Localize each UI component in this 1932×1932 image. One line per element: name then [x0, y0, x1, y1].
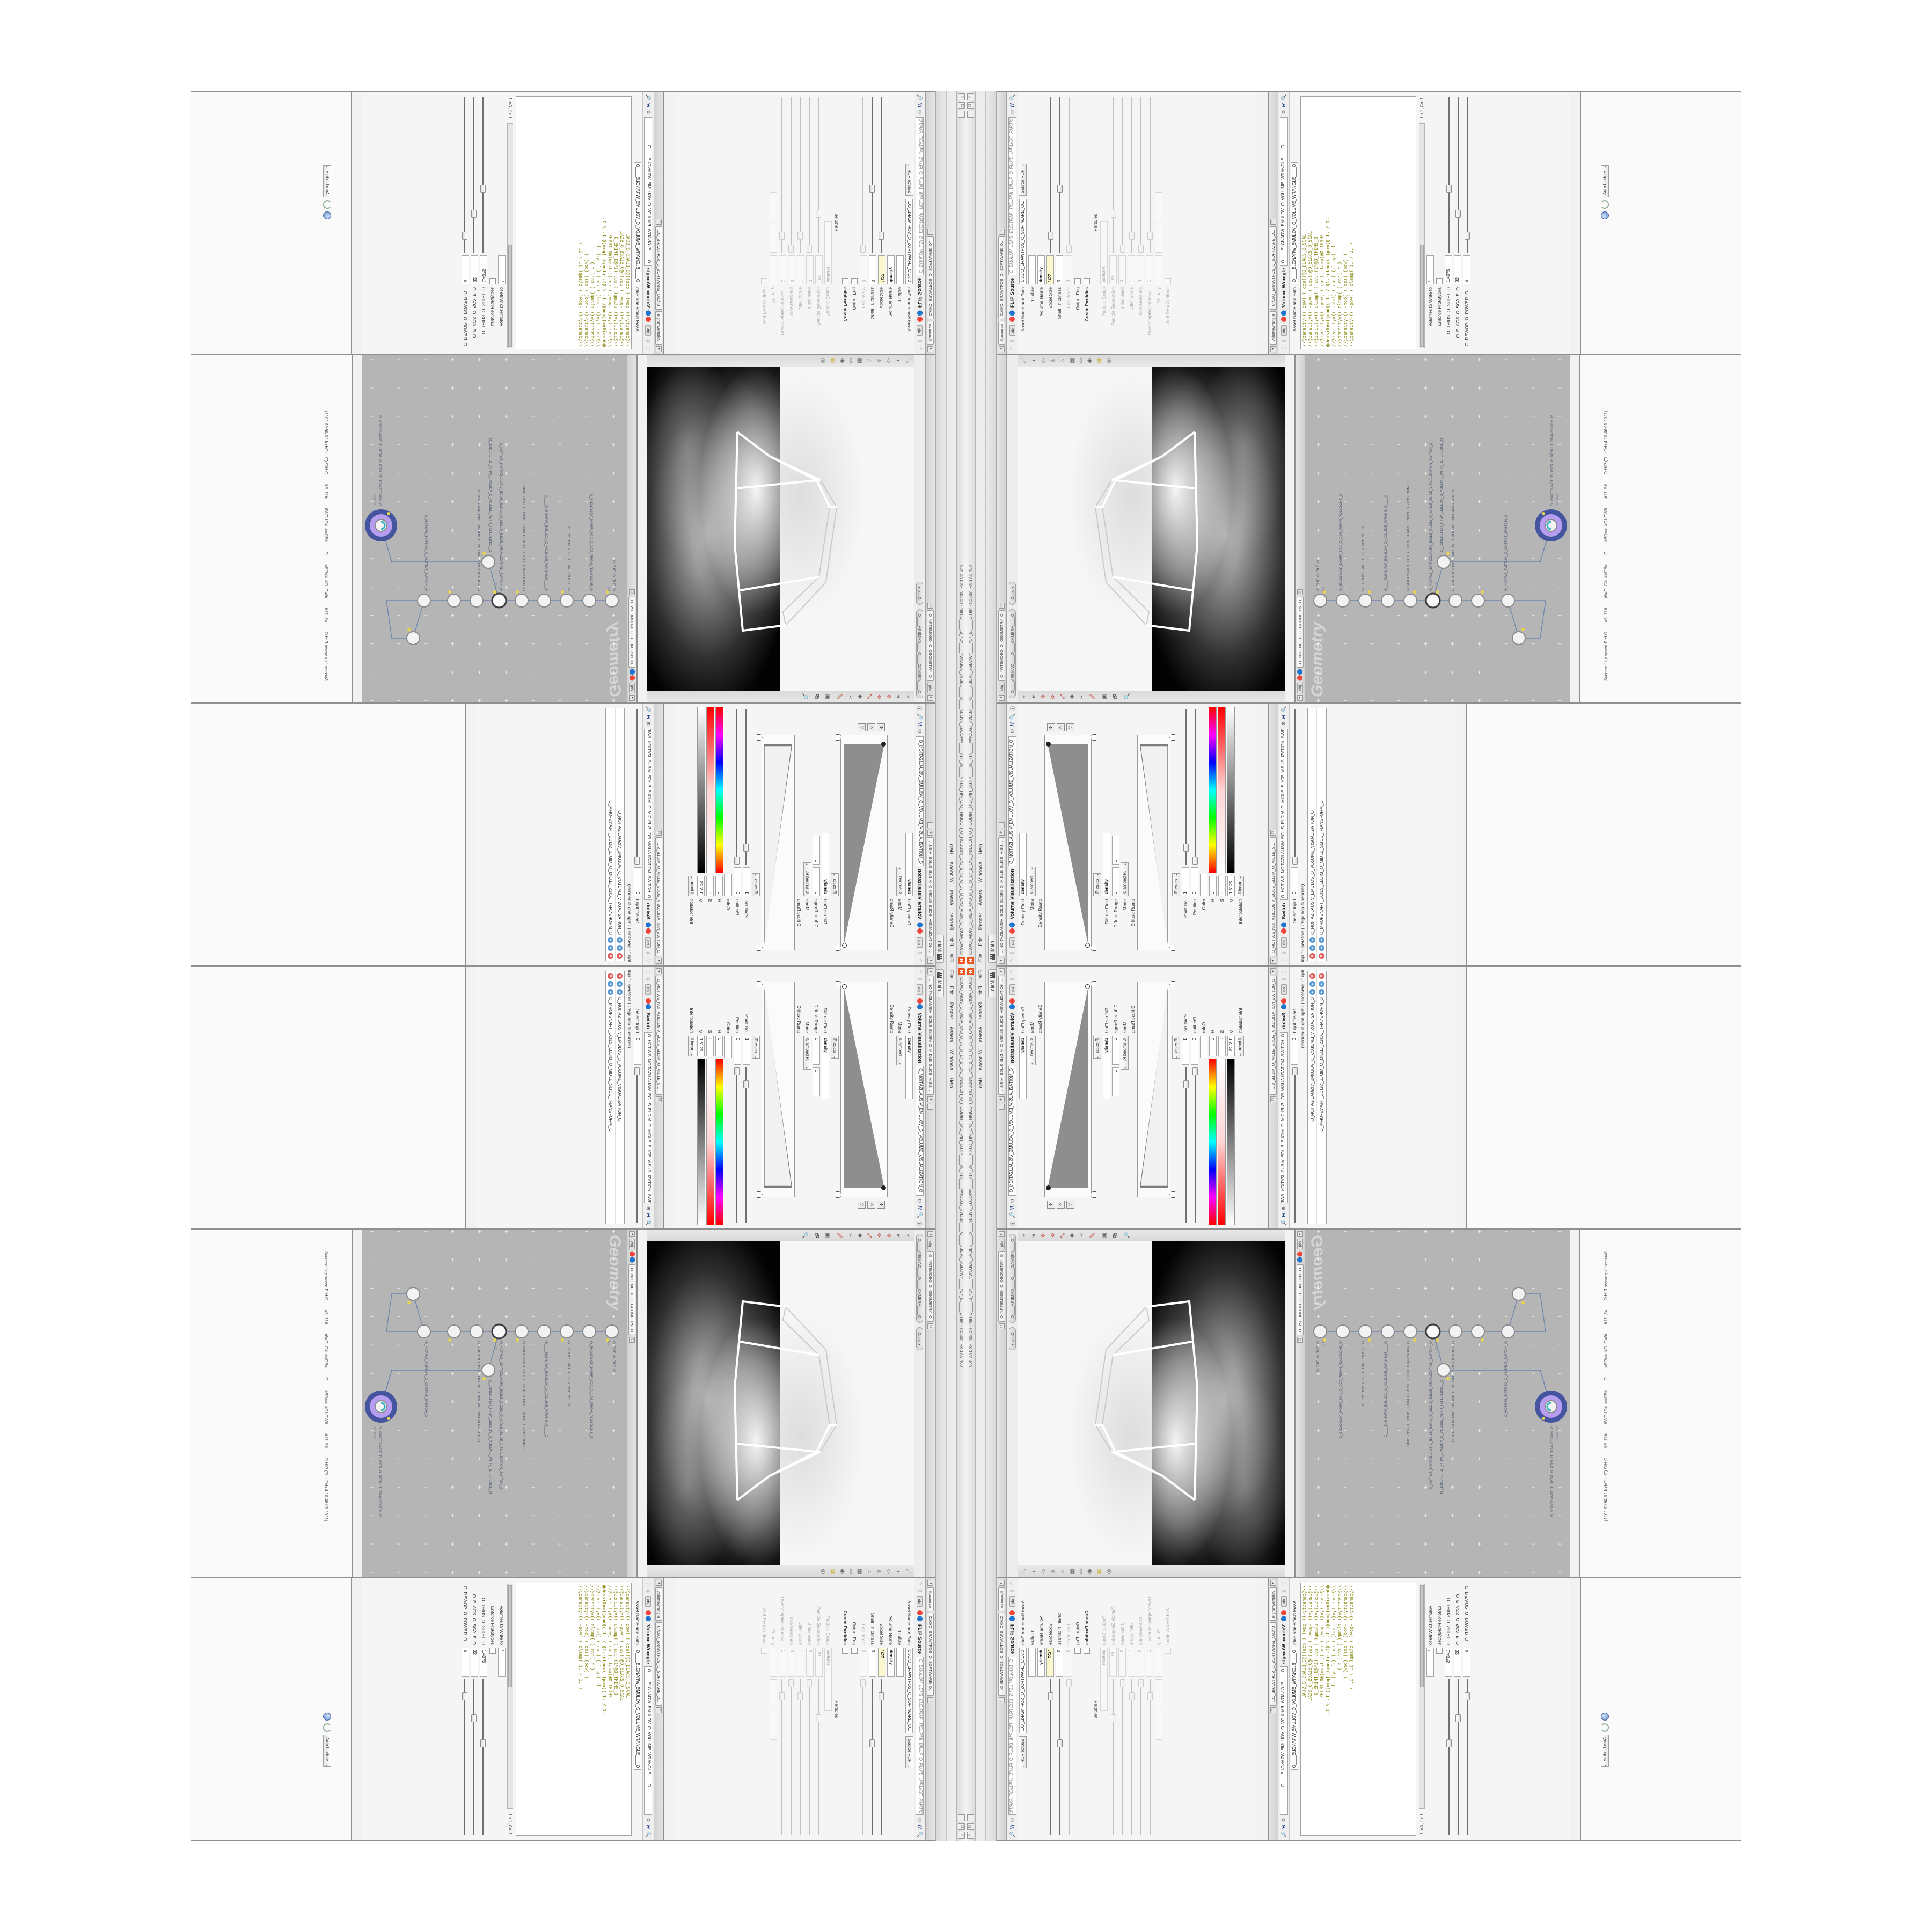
rotate-icon[interactable]: ⟳ [1050, 1233, 1056, 1238]
flipbook-icon[interactable]: 🗗 [811, 694, 821, 699]
pane-max-icon[interactable]: ▢ [656, 830, 662, 836]
node-name-field[interactable]: O_HCTIWS_NOITAZILAUSIV_ECILS_ELDIM_O_MID… [1280, 729, 1288, 901]
flipbook-icon[interactable]: 🗗 [811, 1233, 821, 1238]
output-fog-checkbox[interactable] [1074, 1648, 1081, 1654]
reorder-input-icon[interactable]: ◂ [608, 981, 614, 987]
ramp-handle-end[interactable] [1046, 742, 1051, 747]
hue-strip[interactable] [1209, 1059, 1217, 1225]
ortho-toggle[interactable]: Ortho ▾ [917, 1327, 924, 1350]
pane-tab-path[interactable]: C:/O/O_ERAWTFOS_O_SOFTWARE_O... [655, 1622, 662, 1705]
obj-chip[interactable]: obj [1281, 325, 1287, 336]
color-swatch[interactable] [1200, 874, 1207, 896]
ramp-flip-icon[interactable]: ▽ [1066, 1201, 1074, 1209]
h-input[interactable]: 0 [1209, 1036, 1217, 1056]
spare-scale-input[interactable]: 32 [1454, 255, 1461, 284]
select-input-slider[interactable] [1291, 1067, 1298, 1225]
diffuse-ramp-widget[interactable] [1137, 982, 1170, 1197]
select-input-field[interactable]: 0 [634, 1036, 642, 1065]
pane-max-icon[interactable]: ▢ [927, 603, 933, 609]
pane-scroll-left-icon[interactable]: ◂ [927, 1580, 933, 1586]
obj-chip[interactable]: obj [629, 1239, 635, 1249]
gear-icon[interactable]: ⚙ [1281, 1818, 1287, 1822]
obj-chip[interactable]: obj [646, 984, 652, 995]
particle-separation-input[interactable]: 1/9 [816, 255, 823, 284]
ramp-add-icon[interactable]: ✛ [1047, 1201, 1055, 1209]
comet-icon[interactable]: ☄ [905, 1569, 911, 1574]
select-arrow-icon[interactable]: ➤ [895, 694, 901, 699]
ramp-marker-right[interactable] [836, 1191, 841, 1198]
close-button[interactable]: ✕ [967, 93, 974, 100]
nav-up-icon[interactable]: ⇧ [1280, 1581, 1287, 1586]
density-presets-dropdown[interactable]: Presets [831, 1036, 839, 1059]
pane-scroll-left-icon[interactable]: ◂ [1297, 695, 1303, 701]
vex-code-editor[interactable]: //@density=(( pow( ( cos((@O_ELACS_O_SCA… [1300, 96, 1416, 349]
pane-scroll-left-icon[interactable]: ◂ [1270, 958, 1276, 964]
particle-group-input[interactable]: particles [1100, 221, 1108, 284]
select-arrow-icon[interactable]: ➤ [1031, 1233, 1037, 1238]
input-operator-row[interactable]: ✕ ◂ ◂ O_NOITAZILAUSIV_EMULOV_O_VOLUME_VI… [615, 708, 624, 961]
jitter-seed-input[interactable]: 0 [1118, 255, 1126, 284]
density-ramp-widget[interactable]: ✛ ✕ ▽ [840, 982, 888, 1197]
ortho-toggle[interactable]: Ortho ▾ [1009, 1327, 1016, 1350]
spare-scale-slider[interactable] [472, 1679, 478, 1837]
diffuse-mode-dropdown[interactable]: Clamped R... [803, 862, 811, 896]
camera-selector[interactable]: O____AREMAC____O____CAMERA____O [1009, 1234, 1016, 1323]
delete-input-icon[interactable]: ✕ [608, 953, 614, 959]
reorder-input-icon[interactable]: ◂ [608, 989, 614, 995]
spare-shift-slider[interactable] [481, 95, 487, 253]
point-no-input[interactable]: 1 [1182, 867, 1189, 896]
network-canvas[interactable]: + + + + + + + + + + + + + + + + + + + + … [1305, 1230, 1570, 1577]
s-input[interactable]: 0 [1218, 1036, 1226, 1056]
search-icon[interactable]: 🔍 [646, 1220, 652, 1226]
pane-max-icon[interactable]: ▢ [1270, 219, 1276, 225]
cook-mode-control[interactable]: Auto Update [1600, 165, 1609, 219]
scissors-icon[interactable]: ✂ [847, 694, 853, 699]
reorder-input-icon[interactable]: ◂ [1309, 945, 1315, 951]
input-operator-row[interactable]: ✕ ◂ ◂ O_NOITAZILAUSIV_EMULOV_O_VOLUME_VI… [615, 971, 624, 1224]
voxel-size-input[interactable]: 1/27 [879, 255, 886, 284]
node-name-field[interactable]: O_NOITAZILAUSIV_EMULOV_O_VOLUME_VISUALIZ… [1008, 1066, 1016, 1196]
viewport-canvas[interactable] [1018, 1241, 1285, 1565]
ramp-marker-left[interactable] [836, 981, 841, 987]
spare-power-input[interactable]: 6 [1463, 255, 1470, 284]
volumes-to-write-input[interactable]: * [499, 255, 506, 284]
abc-icon[interactable]: abc [1079, 357, 1083, 363]
pane-tab[interactable]: O_HCTIWS_NOITAZILAUSIV_ECILS_ELDIM_O_MID… [1270, 837, 1277, 956]
oversampling-input[interactable]: 0 [1137, 255, 1144, 284]
gear-icon[interactable]: ⚙ [1009, 109, 1015, 114]
spare-scale-input[interactable]: 32 [471, 1648, 479, 1677]
pane-tab-flipsource[interactable]: flipsource [927, 321, 934, 345]
density-field-input[interactable]: density [1019, 1036, 1027, 1099]
pane-tab[interactable]: ....NOITAZILAUSIV_ECILS_ELDIM_O_MIDLE_SL… [927, 837, 934, 956]
voxel-size-slider[interactable] [1047, 1679, 1053, 1837]
node-name-field[interactable]: O_HCTIWS_NOITAZILAUSIV_ECILS_ELDIM_O_MID… [645, 729, 653, 901]
particle-separation-slider[interactable] [816, 1679, 823, 1837]
search-icon[interactable]: 🔍 [917, 714, 923, 720]
h-input[interactable]: 0 [716, 1036, 723, 1056]
spare-power-input[interactable]: 6 [1463, 1648, 1470, 1677]
network-canvas[interactable]: + + + + + + + + + + + + + + + + + + + + … [362, 1230, 627, 1577]
delete-input-icon[interactable]: ✕ [1309, 973, 1315, 979]
gear-icon[interactable]: ⚙ [917, 729, 923, 733]
recook-icon[interactable] [1600, 1723, 1609, 1732]
pane-scroll-left-icon[interactable]: ◂ [999, 958, 1005, 964]
fog-boost-slider[interactable] [1065, 1679, 1072, 1837]
saturation-strip[interactable] [1218, 1059, 1226, 1225]
menu-assets[interactable]: Assets [978, 1027, 984, 1042]
code-hscrollbar[interactable] [1419, 1584, 1425, 1809]
point-no-input[interactable]: 1 [1182, 1036, 1189, 1065]
hue-strip[interactable] [715, 1059, 723, 1225]
ramp-flip-icon[interactable]: ▽ [1066, 723, 1074, 731]
menu-file[interactable]: File [978, 970, 984, 978]
comet-icon[interactable]: ☄ [905, 358, 911, 363]
nav-up-icon[interactable]: ⇧ [1009, 958, 1016, 963]
spare-power-input[interactable]: 6 [462, 1648, 470, 1677]
spare-shift-input[interactable]: 1.4375 [1445, 1648, 1452, 1677]
density-field-input[interactable]: density [906, 1036, 913, 1099]
pane-scroll-left-icon[interactable]: ◂ [927, 968, 933, 974]
spare-scale-slider[interactable] [472, 95, 478, 253]
pane-tab[interactable]: ....NOITAZILAUSIV_ECILS_ELDIM_O_MIDLE_SL… [927, 976, 934, 1095]
desktop-tab-main[interactable]: Main [936, 969, 944, 997]
volumes-to-write-input[interactable]: * [499, 1648, 506, 1677]
position-input[interactable]: 0 [1191, 867, 1198, 896]
asset-name-field[interactable]: O_EMULOV_LEHS_ELCITRAP_TICILPMI_DIULF_O_… [1008, 117, 1016, 275]
enforce-prototypes-checkbox[interactable] [490, 278, 496, 284]
node-name-field[interactable]: O_NOITAZILAUSIV_EMULOV_O_VOLUME_VISUALIZ… [916, 736, 924, 866]
pane-tab[interactable]: O_HCTIWS_NOITAZILAUSIV_ECILS_ELDIM_O_MID… [655, 976, 662, 1095]
camera-selector[interactable]: O____AREMAC____O____CAMERA____O [917, 1234, 924, 1323]
oversampling-bw-input[interactable]: 1 [1146, 255, 1153, 284]
gear-icon[interactable]: ⚙ [917, 109, 923, 114]
v-input[interactable]: 1.8125 [698, 876, 705, 896]
spare-shift-slider[interactable] [1445, 1679, 1452, 1837]
nav-up-icon[interactable]: ⇧ [1009, 346, 1016, 351]
pose-icon[interactable]: 🖉 [834, 1233, 843, 1239]
nav-down-icon[interactable]: ⇩ [645, 339, 652, 343]
menu-windows[interactable]: Windows [949, 862, 955, 883]
input-operator-row[interactable]: ✕ ◂ ◂ O_NOITAZILAUSIV_EMULOV_O_VOLUME_VI… [1308, 971, 1317, 1224]
ramp-marker-right[interactable] [1091, 1191, 1096, 1198]
diffuse-ramp-widget[interactable] [762, 982, 795, 1197]
gear-icon[interactable]: ⚙ [917, 1198, 923, 1203]
desktop-tab-main[interactable]: Main [988, 969, 996, 997]
input-operator-row[interactable]: ✕ ◂ ◂ O_MROFSNART_ECILS_ELDIM_O_MIDLE_SL… [1317, 708, 1326, 961]
oversampling-bw-slider[interactable] [1146, 1679, 1153, 1837]
gear-icon[interactable]: ⚙ [646, 1206, 652, 1210]
asset-mode-dropdown[interactable]: Source FLIP [1019, 1736, 1027, 1768]
add-rest-checkbox[interactable] [1165, 278, 1171, 284]
ramp-marker-right[interactable] [836, 734, 841, 741]
select-input-field[interactable]: 0 [1291, 867, 1298, 896]
pane-scroll-left-icon[interactable]: ◂ [1270, 1580, 1276, 1586]
gear-icon[interactable]: ⚙ [1281, 721, 1287, 726]
pane-max-icon[interactable]: ▢ [1297, 589, 1303, 595]
ramp-flip-icon[interactable]: ▽ [858, 1201, 866, 1209]
pane-scroll-left-icon[interactable]: ◂ [656, 968, 662, 974]
position-input[interactable]: 0 [1191, 1036, 1198, 1065]
output-fog-checkbox[interactable] [1074, 278, 1081, 284]
jitter-scale-slider[interactable] [798, 1679, 804, 1837]
scissors-icon[interactable]: ✂ [1079, 1233, 1085, 1238]
nav-down-icon[interactable]: ⇩ [1009, 950, 1016, 955]
info-icon[interactable]: ⓘ [1009, 1221, 1016, 1226]
menu-help[interactable]: Help [978, 844, 984, 855]
code-hscrollbar[interactable] [508, 123, 514, 348]
scale-icon[interactable]: ⤢ [1060, 694, 1066, 699]
obj-chip[interactable]: obj [1297, 683, 1303, 693]
scale-icon[interactable]: ⤢ [1060, 1233, 1066, 1238]
oversampling-input[interactable]: 0 [788, 1648, 796, 1677]
pane-max-icon[interactable]: ▢ [927, 229, 933, 235]
nav-down-icon[interactable]: ⇩ [1280, 950, 1287, 955]
code-hscrollbar[interactable] [508, 1584, 514, 1809]
search-icon[interactable]: 🔍 [1281, 1220, 1287, 1226]
info-icon[interactable]: ⓘ [917, 706, 924, 711]
pane-tab-volumewrangle[interactable]: volumewrangle [1270, 311, 1277, 345]
lens-icon[interactable]: ◉ [1087, 1569, 1093, 1574]
pane-max-icon[interactable]: ▢ [656, 1707, 662, 1713]
spare-scale-input[interactable]: 32 [471, 255, 479, 284]
ramp-handle-end[interactable] [881, 742, 886, 747]
ramp-del-icon[interactable]: ✕ [867, 723, 875, 731]
obj-chip[interactable]: obj [999, 1239, 1005, 1249]
reorder-input-icon[interactable]: ◂ [1319, 989, 1324, 995]
pane-max-icon[interactable]: ▢ [999, 1323, 1005, 1329]
spare-shift-input[interactable]: 1.4375 [1445, 255, 1452, 284]
gear-icon[interactable]: ⚙ [917, 1818, 923, 1822]
reorder-input-icon[interactable]: ◂ [1319, 937, 1324, 943]
point-no-input[interactable]: 1 [743, 867, 751, 896]
search-icon[interactable]: 🔍 [1009, 94, 1015, 100]
pane-tab-path[interactable]: C:/O/O_ERAWTFOS_O_SOFTWARE_O... [927, 237, 934, 319]
shade-sphere-icon[interactable]: ◑ [1031, 359, 1037, 362]
abc-icon[interactable]: abc [849, 357, 853, 363]
flipbook-icon[interactable]: 🗗 [1111, 694, 1121, 699]
gear-icon[interactable]: ⚙ [646, 109, 652, 114]
density-field-input[interactable]: density [1019, 833, 1027, 896]
gear-icon[interactable]: ⚙ [1009, 1818, 1015, 1822]
value-strip[interactable] [1227, 707, 1235, 873]
pane-max-icon[interactable]: ▢ [927, 1323, 933, 1329]
position-input[interactable]: 0 [734, 1036, 742, 1065]
pane-max-icon[interactable]: ▢ [999, 229, 1005, 235]
ramp-marker-right[interactable] [757, 734, 763, 741]
shade-sphere-icon[interactable]: ◑ [895, 1570, 901, 1573]
info-icon[interactable]: ⓘ [1009, 706, 1016, 711]
search-icon[interactable]: 🔍 [1281, 94, 1287, 100]
nav-down-icon[interactable]: ⇩ [645, 950, 652, 955]
obj-chip[interactable]: obj [1281, 1596, 1287, 1607]
diffuse-field-input[interactable]: density [1103, 1036, 1110, 1099]
oversampling-input[interactable]: 0 [788, 255, 796, 284]
voxel-size-input[interactable]: 1/27 [879, 1648, 886, 1677]
jitter-seed-input[interactable]: 0 [807, 255, 814, 284]
restore-button[interactable]: ❐ [958, 1823, 965, 1830]
ramp-del-icon[interactable]: ✕ [1057, 1201, 1065, 1209]
asset-name-field[interactable]: O_EMULOV_LEHS_ELCITRAP_TICILPMI_DIULF_O_… [916, 117, 924, 275]
asset-path-input[interactable]: C:/O/O_ERAWTFOS_O_SOFTWARE_O... [906, 1648, 913, 1733]
gear-icon[interactable]: ⚙ [646, 721, 652, 726]
pane-tab[interactable]: ....NOITAZILAUSIV_ECILS_ELDIM_O_MIDLE_SL… [998, 976, 1005, 1095]
view-tool-icon[interactable]: ⌖ [905, 695, 911, 698]
density-field-input[interactable]: density [906, 833, 913, 896]
ramp-handle-start[interactable] [1085, 943, 1090, 948]
reorder-input-icon[interactable]: ◂ [617, 945, 623, 951]
reorder-input-icon[interactable]: ◂ [617, 989, 623, 995]
normals-icon[interactable]: ⋔ [876, 358, 882, 363]
lens-icon[interactable]: ◉ [839, 1569, 845, 1574]
ramp-handle-start[interactable] [842, 943, 847, 948]
enforce-prototypes-checkbox[interactable] [1436, 278, 1443, 284]
asset-path-input[interactable]: C:/O/O_ERAWTFOS_O_SOFTWARE_O... [906, 199, 913, 284]
pane-scroll-left-icon[interactable]: ◂ [1270, 346, 1276, 352]
quadview-icon[interactable]: ⊞ [1096, 1569, 1102, 1574]
minimize-button[interactable]: — [958, 111, 965, 118]
snap-icon[interactable]: ✱ [857, 1233, 862, 1238]
translate-icon[interactable]: ✥ [1041, 694, 1046, 699]
network-breadcrumb[interactable]: O_YRTEMOEG_O_GEOMETRY_O [1297, 1264, 1304, 1335]
create-particles-checkbox[interactable] [1084, 1648, 1090, 1654]
obj-chip[interactable]: obj [917, 325, 923, 336]
render-region-icon[interactable]: ▣ [1102, 1233, 1108, 1238]
pane-max-icon[interactable]: ▢ [1270, 830, 1276, 836]
position-slider[interactable] [1191, 1067, 1198, 1225]
oversampling-bw-slider[interactable] [780, 1679, 786, 1837]
diffuse-range-min[interactable]: 0 [813, 867, 821, 896]
search-icon[interactable]: 🔍 [917, 1212, 923, 1218]
color-swatch[interactable] [725, 874, 733, 896]
v-input[interactable]: 1.8125 [1227, 1036, 1235, 1056]
search-icon[interactable]: 🔍 [1009, 1832, 1015, 1838]
density-presets-dropdown[interactable]: Presets [1093, 873, 1101, 896]
gear-icon[interactable]: ⚙ [1009, 1198, 1015, 1203]
pane-tab[interactable]: O_HCTIWS_NOITAZILAUSIV_ECILS_ELDIM_O_MID… [655, 837, 662, 956]
nav-up-icon[interactable]: ⇧ [917, 958, 924, 963]
desktop-tab-main[interactable]: Main [936, 935, 944, 963]
points-icon[interactable]: ∴ [1060, 359, 1066, 362]
nav-up-icon[interactable]: ⇧ [645, 1581, 652, 1586]
nav-down-icon[interactable]: ⇩ [917, 1589, 924, 1593]
enforce-prototypes-checkbox[interactable] [1436, 1648, 1443, 1654]
pane-scroll-left-icon[interactable]: ◂ [999, 695, 1005, 701]
pose-icon[interactable]: 🖉 [1089, 1233, 1098, 1239]
pane-scroll-left-icon[interactable]: ◂ [999, 1231, 1005, 1237]
asset-name-field[interactable]: O_EMULOV_LEHS_ELCITRAP_TICILPMI_DIULF_O_… [916, 1657, 924, 1815]
diffuse-range-min[interactable]: 0 [813, 1036, 821, 1065]
obj-chip[interactable]: obj [1009, 984, 1015, 995]
pane-tab-flipsource[interactable]: flipsource [998, 321, 1005, 345]
pane-max-icon[interactable]: ▢ [999, 1697, 1005, 1703]
shell-thickness-slider[interactable] [1056, 1679, 1063, 1837]
search-icon[interactable]: 🔍 [1009, 714, 1015, 720]
search-icon[interactable]: 🔍 [917, 1832, 923, 1838]
fog-boost-input[interactable]: 0 [860, 255, 868, 284]
view-tool-icon[interactable]: ⌖ [1021, 695, 1027, 698]
texture-icon[interactable]: ▦ [857, 1569, 862, 1574]
fog-boost-slider[interactable] [1065, 95, 1072, 253]
diffuse-range-min[interactable]: 0 [1112, 1036, 1119, 1065]
volume-name-input[interactable]: density [1037, 255, 1045, 284]
texture-icon[interactable]: ▦ [857, 358, 862, 363]
mode-dropdown[interactable]: Clamped... [1028, 1036, 1036, 1065]
s-input[interactable]: 0 [707, 876, 714, 896]
jitter-seed-slider[interactable] [807, 95, 814, 253]
density-presets-dropdown[interactable]: Presets [831, 873, 839, 896]
nav-up-icon[interactable]: ⇧ [645, 346, 652, 351]
ramp-marker-left[interactable] [1091, 945, 1096, 951]
pane-scroll-left-icon[interactable]: ◂ [629, 695, 635, 701]
nav-down-icon[interactable]: ⇩ [1280, 977, 1287, 982]
diffuse-field-input[interactable]: density [822, 1036, 830, 1099]
abc-icon[interactable]: abc [849, 1568, 853, 1574]
mode-dropdown[interactable]: Clamped... [896, 1036, 904, 1065]
diffuse-ramp-widget[interactable] [1137, 735, 1170, 950]
nav-down-icon[interactable]: ⇩ [1009, 1589, 1016, 1593]
texture-icon[interactable]: ▦ [1070, 358, 1075, 363]
menu-file[interactable]: File [949, 970, 955, 978]
spare-shift-input[interactable]: 1.4375 [480, 1648, 488, 1677]
pane-tab-path[interactable]: C:/O/O_ERAWTFOS_O_SOFTWARE_O... [1270, 1622, 1277, 1705]
shell-thickness-slider[interactable] [870, 95, 876, 253]
particle-separation-input[interactable]: 1/9 [1109, 255, 1117, 284]
pane-max-icon[interactable]: ▢ [927, 1697, 933, 1703]
pane-tab[interactable]: O_YRTEMOEG_O_GEOMETRY_O [927, 610, 934, 681]
ramp-marker-left[interactable] [1169, 981, 1175, 987]
point-no-slider[interactable] [744, 707, 750, 865]
particles-section[interactable]: Particles [833, 92, 841, 354]
volume-name-input[interactable]: density [1037, 1648, 1045, 1677]
voxel-size-input[interactable]: 1/27 [1046, 255, 1054, 284]
pane-tab[interactable]: O_YRTEMOEG_O_GEOMETRY_O [998, 1251, 1005, 1322]
volumes-to-write-input[interactable]: * [1426, 1648, 1434, 1677]
pane-max-icon[interactable]: ▢ [999, 1104, 1005, 1110]
density-ramp-widget[interactable]: ✛ ✕ ▽ [840, 735, 888, 950]
reorder-input-icon[interactable]: ◂ [1309, 989, 1315, 995]
nav-down-icon[interactable]: ⇩ [1280, 1589, 1287, 1593]
obj-chip[interactable]: obj [1281, 937, 1287, 948]
reorder-input-icon[interactable]: ◂ [1319, 945, 1324, 951]
delete-input-icon[interactable]: ✕ [1319, 973, 1324, 979]
voxel-size-slider[interactable] [879, 95, 885, 253]
menu-file[interactable]: File [978, 954, 984, 962]
auto-update-dropdown[interactable]: Auto Update [1601, 1735, 1609, 1767]
node-name-field[interactable]: O____ELGNARW_EMULOV_O_VOLUME_WRANGLE____… [1280, 117, 1288, 266]
oversampling-slider[interactable] [789, 95, 795, 253]
jitter-scale-input[interactable]: 1 [797, 1648, 805, 1677]
delete-input-icon[interactable]: ✕ [617, 953, 623, 959]
gear-icon[interactable]: ⚙ [1281, 1206, 1287, 1210]
diffuse-mode-dropdown[interactable]: Clamped R... [1121, 862, 1129, 896]
menu-edit[interactable]: Edit [949, 937, 955, 946]
saturation-strip[interactable] [706, 707, 714, 873]
pane-max-icon[interactable]: ▢ [656, 1096, 662, 1102]
pane-tab[interactable]: ....NOITAZILAUSIV_ECILS_ELDIM_O_MIDLE_SL… [998, 837, 1005, 956]
h-input[interactable]: 0 [716, 876, 723, 896]
particle-separation-slider[interactable] [816, 95, 823, 253]
snap-icon[interactable]: ✱ [857, 694, 862, 699]
ramp-marker-right[interactable] [1091, 734, 1096, 741]
oversampling-slider[interactable] [1137, 1679, 1144, 1837]
ramp-marker-right[interactable] [1169, 1191, 1175, 1198]
add-rest-checkbox[interactable] [1165, 1648, 1171, 1654]
view-tool-icon[interactable]: ⌖ [1021, 1234, 1027, 1237]
search-icon[interactable]: 🔍 [1281, 1832, 1287, 1838]
fog-boost-input[interactable]: 0 [1065, 1648, 1072, 1677]
